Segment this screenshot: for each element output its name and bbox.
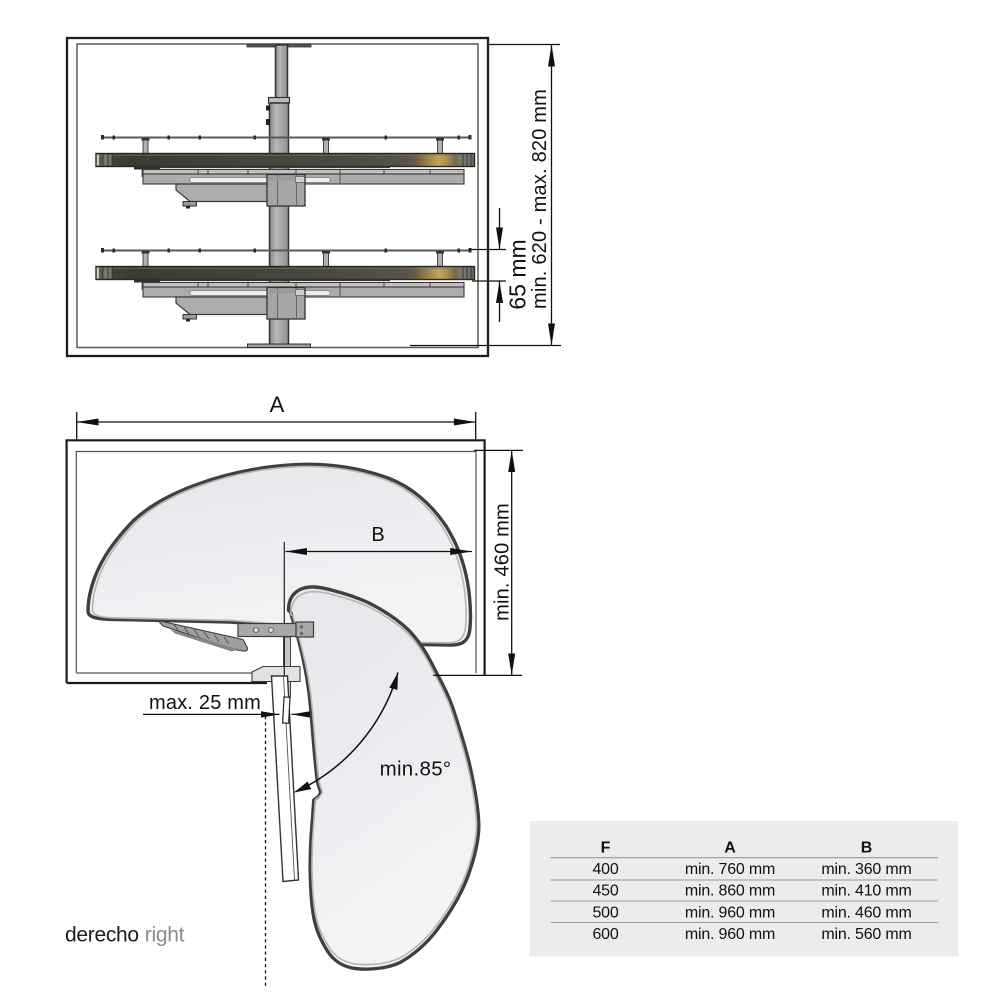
- svg-text:min. 620 - max. 820 mm: min. 620 - max. 820 mm: [529, 89, 551, 309]
- svg-text:min. 410 mm: min. 410 mm: [821, 883, 911, 900]
- svg-text:A: A: [270, 392, 285, 417]
- svg-text:500: 500: [592, 905, 618, 922]
- svg-text:min. 960 mm: min. 960 mm: [685, 905, 775, 922]
- svg-text:min. 360 mm: min. 360 mm: [821, 861, 911, 878]
- svg-text:400: 400: [592, 861, 618, 878]
- svg-text:derechoright: derechoright: [65, 924, 185, 947]
- svg-text:min. 460 mm: min. 460 mm: [492, 503, 514, 621]
- svg-text:min.85°: min.85°: [380, 758, 452, 781]
- svg-text:65 mm: 65 mm: [505, 239, 531, 309]
- svg-text:min. 960 mm: min. 960 mm: [685, 926, 775, 943]
- svg-text:B: B: [371, 524, 384, 546]
- svg-text:450: 450: [592, 883, 618, 900]
- svg-text:min. 460 mm: min. 460 mm: [821, 905, 911, 922]
- svg-text:min. 760 mm: min. 760 mm: [685, 861, 775, 878]
- svg-text:A: A: [724, 840, 736, 857]
- svg-text:max. 25 mm: max. 25 mm: [149, 692, 261, 714]
- svg-text:min. 560 mm: min. 560 mm: [821, 926, 911, 943]
- svg-text:B: B: [861, 840, 873, 857]
- svg-text:600: 600: [592, 926, 618, 943]
- svg-text:F: F: [601, 840, 611, 857]
- svg-text:min. 860 mm: min. 860 mm: [685, 883, 775, 900]
